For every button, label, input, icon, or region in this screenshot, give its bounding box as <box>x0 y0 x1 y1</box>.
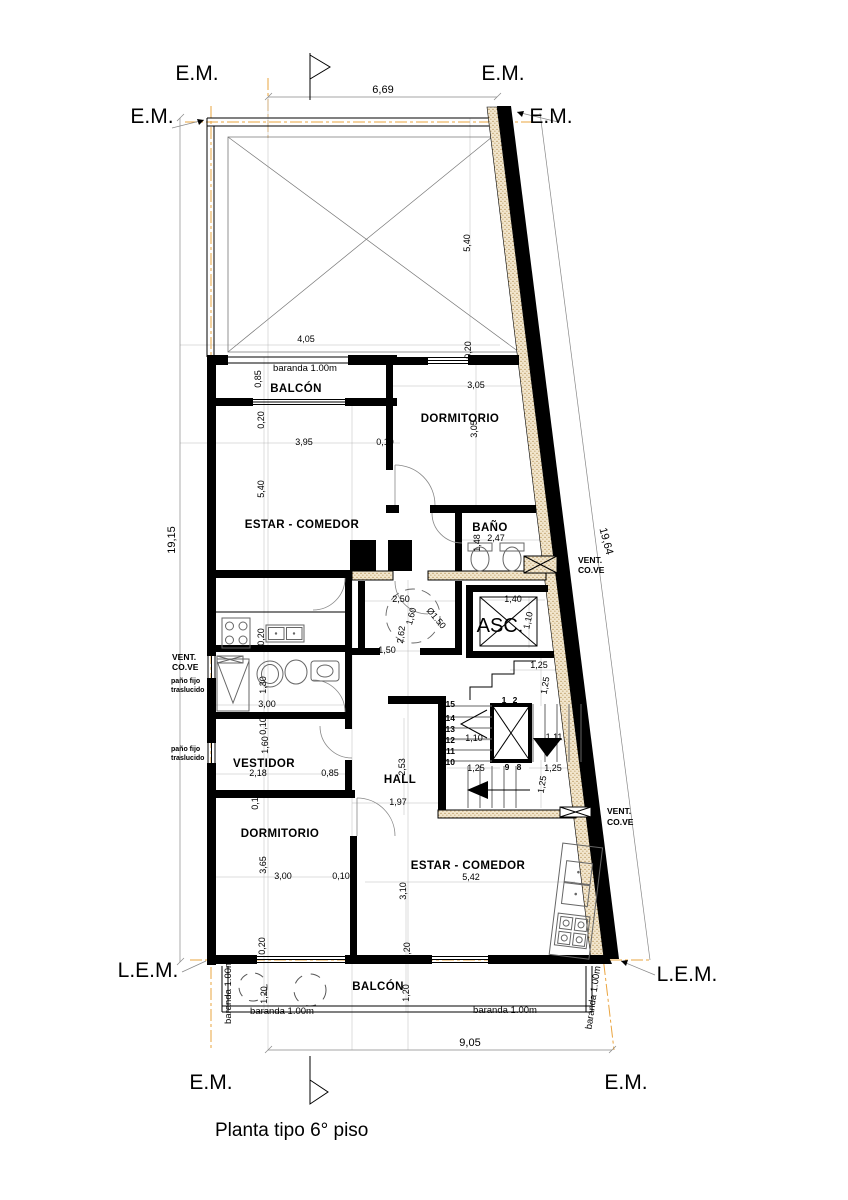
baranda-label-bottom-right: baranda 1.00m <box>473 1005 537 1016</box>
dim-wall-020a: 0,20 <box>256 411 266 429</box>
dim-dorm2-w: 3,00 <box>274 871 292 881</box>
dim-estar2-w: 5,42 <box>462 872 480 882</box>
stair-shaft-void <box>492 705 530 761</box>
dim-dorm2-h: 3,65 <box>258 856 268 874</box>
dim-stair-right: 1,11 <box>546 732 563 742</box>
em-marker-right: E.M. <box>529 105 572 128</box>
dim-asc-w: 1,40 <box>504 594 522 604</box>
dim-vest-h: 1,60 <box>260 736 270 754</box>
stair-number-12: 12 <box>446 735 456 745</box>
dim-stair-b2: 1,25 <box>536 775 549 794</box>
lem-marker-left: L.E.M. <box>118 959 179 982</box>
dim-bano-w: 2,47 <box>487 533 505 543</box>
dim-bano-h: 1,48 <box>472 534 482 552</box>
vent-label-right-lower-2: CO.VE <box>607 817 634 827</box>
dim-top-width: 6,69 <box>372 84 393 96</box>
em-marker-bottom-left: E.M. <box>189 1071 232 1094</box>
lem-marker-right: L.E.M. <box>657 963 718 986</box>
room-label-estar-bottom: ESTAR - COMEDOR <box>411 860 526 872</box>
dim-estar-top-w: 3,95 <box>295 437 313 447</box>
window-left-lower <box>208 743 215 763</box>
dim-stair-br: 1,25 <box>544 763 562 773</box>
dim-balcon-top-d: 0,85 <box>253 370 263 388</box>
dim-kitchen-wall: 0,20 <box>256 628 266 646</box>
shower <box>217 656 249 711</box>
room-label-estar-top: ESTAR - COMEDOR <box>245 519 360 531</box>
stair-number-1: 1 <box>502 695 507 705</box>
room-label-balcon-bottom: BALCÓN <box>352 980 404 993</box>
window-bottom-left <box>257 957 345 963</box>
dim-bottom-width: 9,05 <box>459 1037 480 1049</box>
dim-bath-h: 1,30 <box>258 676 268 694</box>
dim-wall-010a: 0,10 <box>376 437 394 447</box>
dim-dorm2-wall: 0,10 <box>250 792 260 810</box>
vent-label-left-1: VENT. <box>172 652 196 662</box>
baranda-label-vert-left: baranda 1.00m <box>223 960 234 1024</box>
dim-dorm-top-h: 3,05 <box>469 420 479 438</box>
patio-void <box>207 118 519 357</box>
dim-vest-w: 2,18 <box>249 768 267 778</box>
vent-label-left-2: CO.VE <box>172 662 199 672</box>
dim-balcon2-d2: 1,20 <box>401 984 411 1002</box>
dim-estar-top-h: 5,40 <box>256 480 266 498</box>
floor-plan-sheet: E.M. E.M. E.M. E.M. L.E.M. L.E.M. E.M. E… <box>0 0 848 1200</box>
vent-label-right-upper-2: CO.VE <box>578 565 605 575</box>
em-marker-top-right: E.M. <box>481 62 524 85</box>
em-marker-left: E.M. <box>130 105 173 128</box>
baranda-label-top: baranda 1.00m <box>273 363 337 374</box>
vent-shaft-lower <box>560 807 591 817</box>
stair-number-15: 15 <box>446 699 456 709</box>
dim-balcon2-d1: 1,20 <box>259 986 269 1004</box>
dim-wall-010c: 0,10 <box>332 871 350 881</box>
pano-fijo-label-2b: traslucido <box>171 755 204 762</box>
dim-balcon-top-w: 4,05 <box>297 334 315 344</box>
dim-stair-top: 1,25 <box>530 660 548 670</box>
dim-estar2-h: 3,10 <box>398 882 408 900</box>
baranda-label-bottom-left: baranda 1.00m <box>250 1006 314 1017</box>
window-dormitorio-top <box>428 358 468 364</box>
room-label-dormitorio-bottom: DORMITORIO <box>241 828 320 840</box>
room-label-dormitorio-top: DORMITORIO <box>421 413 500 425</box>
dim-hall-w: 1,97 <box>389 797 407 807</box>
north-arrow-bottom-icon <box>310 1056 328 1104</box>
em-marker-top-left: E.M. <box>175 62 218 85</box>
dim-stair-top2: 1,25 <box>539 676 552 695</box>
room-label-asc: ASC. <box>477 615 524 637</box>
stair-number-13: 13 <box>446 724 456 734</box>
window-bottom-right <box>432 957 488 963</box>
room-label-balcon-top: BALCÓN <box>270 382 322 395</box>
stair-number-2: 2 <box>513 695 518 705</box>
sheet-title: Planta tipo 6° piso <box>215 1120 368 1141</box>
dim-stair-bl: 1,25 <box>467 763 485 773</box>
stove-top-kitchen <box>222 618 250 648</box>
stair-number-9: 9 <box>505 762 510 772</box>
dim-stair-left: 1,10 <box>465 733 483 743</box>
stair-number-8: 8 <box>517 762 522 772</box>
pano-fijo-label-1b: traslucido <box>171 687 204 694</box>
floor-plan-drawing: E.M. E.M. E.M. E.M. L.E.M. L.E.M. E.M. E… <box>0 0 848 1200</box>
dim-left-height: 19,15 <box>166 526 178 554</box>
dim-right-height: 19,64 <box>597 526 616 556</box>
dim-wc-w: 2,50 <box>392 594 410 604</box>
dim-patio-wall: 0,20 <box>463 341 473 359</box>
baranda-label-vert-right: baranda 1.00m <box>584 965 604 1030</box>
dim-wc-h: 1,60 <box>404 606 418 626</box>
dim-wall-010b: 0,10 <box>258 717 268 735</box>
dim-patio-h: 5,40 <box>462 234 472 252</box>
pano-fijo-label-2a: paño fijo <box>171 746 200 753</box>
slanted-party-wall <box>487 106 650 960</box>
stair-number-11: 11 <box>446 746 455 756</box>
dim-wall-020b: 0,20 <box>257 937 267 955</box>
north-arrow-top-icon <box>310 53 330 100</box>
vent-shaft-bano <box>524 556 557 573</box>
dim-vest-w2: 0,85 <box>321 768 339 778</box>
dim-bath-w: 3,00 <box>258 699 276 709</box>
dim-asc-h: 1,10 <box>521 611 534 630</box>
sink-top-kitchen <box>266 625 304 642</box>
stair-number-10: 10 <box>446 757 456 767</box>
dim-dorm-top-w: 3,05 <box>467 380 485 390</box>
dim-wc-diag: 2,62 <box>395 625 407 644</box>
dim-wall-020c: 0,20 <box>402 942 412 960</box>
window-estar-top <box>253 400 345 405</box>
em-marker-bottom-right: E.M. <box>604 1071 647 1094</box>
dim-wc-diameter: Ø1.50 <box>425 605 448 630</box>
stair-number-14: 14 <box>446 713 456 723</box>
window-left-upper <box>208 656 215 678</box>
vent-label-right-lower-1: VENT. <box>607 806 631 816</box>
pano-fijo-label-1a: paño fijo <box>171 678 200 685</box>
dim-passage: 1,50 <box>378 645 396 655</box>
dim-hall-h: 2,53 <box>397 758 407 776</box>
vent-label-right-upper-1: VENT. <box>578 555 602 565</box>
